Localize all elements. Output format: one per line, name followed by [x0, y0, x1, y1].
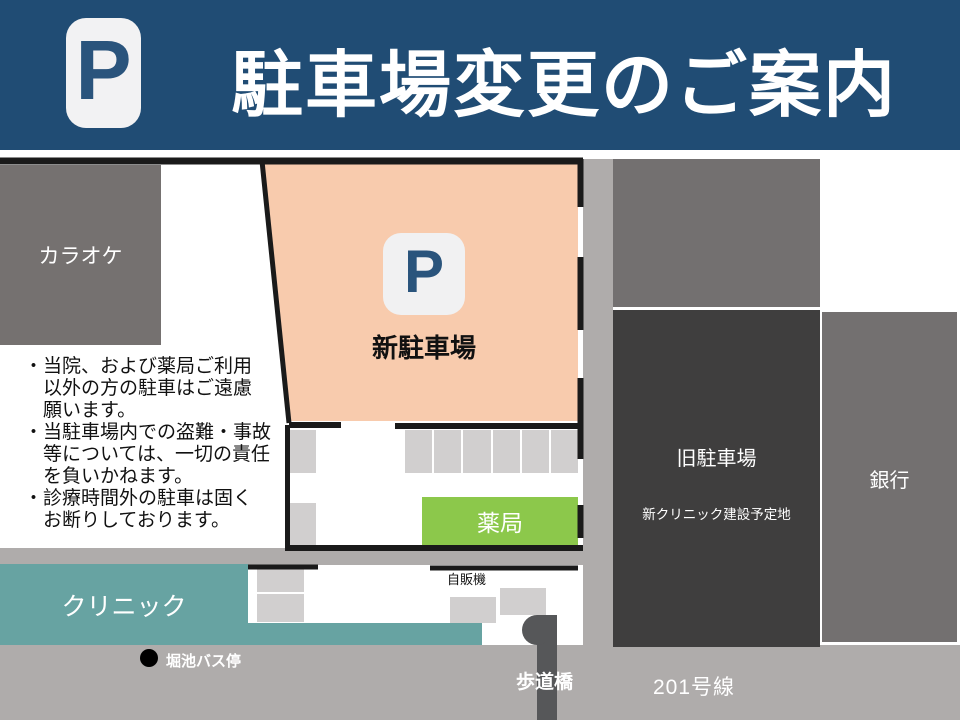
side-road [583, 159, 613, 645]
parking-stall [405, 430, 432, 473]
page-title: 駐車場変更のご案内 [231, 26, 897, 131]
new-parking-icon-letter: P [404, 242, 444, 302]
note-line: 願います。 [24, 400, 300, 422]
parking-stall [522, 430, 549, 473]
note-line: お断りしております。 [24, 510, 300, 532]
bus-stop-dot [140, 649, 158, 667]
bank-building: 銀行 [822, 312, 957, 642]
header: P 駐車場変更のご案内 [0, 0, 960, 150]
bus-stop-label: 堀池バス停 [166, 650, 241, 671]
note-line: ・当駐車場内での盗難・事故 [24, 422, 300, 444]
front-road [0, 548, 583, 565]
pharmacy-building: 薬局 [422, 497, 578, 545]
note-line: ・診療時間外の駐車は固く [24, 488, 300, 510]
parking-change-poster: P 駐車場変更のご案内 カラオケ 旧駐車場 新クリニック建設予定地 銀行 [0, 0, 960, 720]
courtyard-stall [257, 594, 304, 622]
clinic-label: クリニック [61, 587, 186, 623]
vending-machine-label: 自販機 [447, 569, 486, 588]
new-parking-label: 新駐車場 [344, 328, 504, 365]
parking-stall-row [405, 430, 578, 473]
vending-machine-block [450, 597, 496, 623]
parking-icon: P [66, 18, 141, 128]
vending-machine-block [500, 588, 546, 615]
note-line: ・当院、および薬局ご利用 [24, 356, 300, 378]
old-parking-label: 旧駐車場 [613, 442, 820, 471]
new-parking-icon: P [383, 233, 465, 315]
map-area: カラオケ 旧駐車場 新クリニック建設予定地 銀行 薬局 [0, 150, 960, 720]
parking-icon-letter: P [75, 28, 131, 112]
courtyard-stall [257, 567, 304, 592]
footbridge-label: 歩道橋 [516, 667, 573, 694]
clinic-building: クリニック [0, 564, 248, 645]
karaoke-building: カラオケ [0, 165, 161, 345]
parking-stall [493, 430, 520, 473]
usage-notes: ・当院、および薬局ご利用 以外の方の駐車はご遠慮 願います。 ・当駐車場内での盗… [24, 356, 300, 532]
parking-stall [434, 430, 461, 473]
bank-label: 銀行 [822, 464, 957, 493]
karaoke-label: カラオケ [39, 240, 123, 270]
route-201-label: 201号線 [653, 671, 735, 701]
old-parking-sublabel: 新クリニック建設予定地 [613, 503, 820, 523]
parking-stall [463, 430, 490, 473]
old-parking-lot: 旧駐車場 新クリニック建設予定地 [613, 310, 820, 647]
note-line: 以外の方の駐車はご遠慮 [24, 378, 300, 400]
pharmacy-label: 薬局 [477, 504, 523, 538]
footbridge-pillar-cap [522, 615, 552, 645]
note-line: を負いかねます。 [24, 466, 300, 488]
note-line: 等については、一切の責任 [24, 444, 300, 466]
parking-stall [551, 430, 578, 473]
building-upper-right [613, 159, 820, 307]
